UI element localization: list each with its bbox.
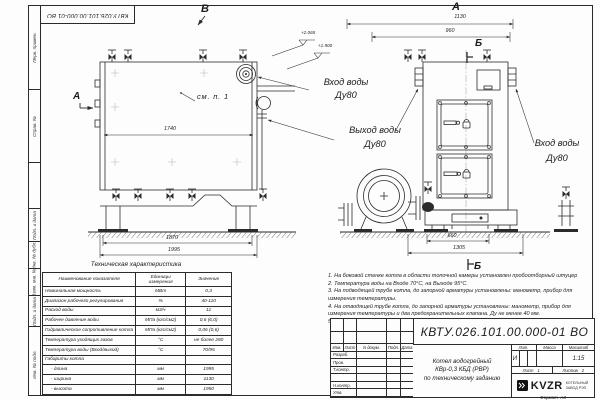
dim-1995: 1995 [168, 248, 180, 253]
role-razrab: Разраб. [331, 352, 357, 360]
lit-mass-scale-headers: Лит. Масса Масштаб [511, 344, 594, 351]
dim-960: 960 [446, 29, 455, 34]
scale-header: Масштаб [563, 344, 594, 351]
section-arrow-b [198, 16, 205, 25]
sheets-cell: Листов2 [553, 367, 595, 374]
elevation-lower: +1.900 [318, 44, 332, 49]
roles-grid: Разраб. Пров. Т.контр. Н.контр. Утв. [331, 352, 413, 398]
lit-value: И [511, 351, 520, 367]
spec-row: Температура уходящих газов°Сне более 280 [43, 335, 232, 345]
dim-1130: 1130 [454, 15, 466, 20]
spec-row: - ширинамм1130 [43, 375, 232, 385]
front-ground [340, 232, 550, 238]
view-marker-v: В [201, 4, 209, 15]
col-list: Лист [344, 344, 357, 352]
view-marker-a-front: А [452, 2, 460, 13]
side-inlet-flange [237, 65, 256, 84]
role-prov: Пров. [331, 359, 357, 367]
side-outlet-piping [256, 86, 295, 201]
dim-1305: 1305 [453, 246, 465, 251]
product-line-3: по техническому заданию [424, 375, 500, 383]
role-nkontr: Н.контр. [331, 382, 357, 390]
section-arrow-a [80, 103, 93, 108]
spec-row: Расход водым3/ч11 [43, 306, 232, 316]
sheet-cell: Лист1 [511, 367, 553, 374]
section-letter-a-side: А [73, 92, 80, 102]
side-view-drawing [80, 16, 418, 258]
company-name: КОТЕЛЬНЫЙ ЗАВОД РЭП [566, 381, 589, 389]
section-mark-b-top [467, 52, 473, 63]
col-dokum: N докум. [357, 344, 387, 352]
title-block: КВТУ.026.101.00.000-01 ВО Изм. Лист N до… [330, 318, 595, 398]
revision-header-row: Изм. Лист N докум. Подп. Дата [331, 344, 413, 352]
section-letter-b-bottom: Б [474, 262, 481, 272]
front-top-panel [477, 70, 500, 90]
product-name-cell: Котел водогрейный КВр-0,3 КБД (РВР) по т… [413, 344, 512, 397]
front-inlet-dn: Ду80 [546, 154, 567, 163]
outlet-dn: Ду80 [364, 140, 385, 149]
col-data: Дата [401, 344, 413, 352]
spec-col-param: Наименование показателя [43, 273, 136, 287]
side-top-valves [108, 50, 247, 62]
doc-number-cell: КВТУ.026.101.00.000-01 ВО [413, 319, 595, 345]
role-tkontr: Т.контр. [331, 367, 357, 375]
note-3: 3. На подводящей трубе котла, до запорно… [328, 288, 594, 303]
spec-row: - высотамм1950 [43, 384, 232, 394]
elevation-upper: +2.065 [301, 31, 315, 36]
dim-1870: 1870 [166, 236, 178, 241]
spec-row: Номинальная мощностьМВт0,3 [43, 287, 232, 297]
spec-row: Диапазон рабочего регулирования%40-110 [43, 296, 232, 306]
spec-row: Рабочее давление водыМПа (кгс/см2)0,6 (6… [43, 316, 232, 326]
center-marks [111, 69, 241, 166]
format-label: Формат А3 [540, 396, 566, 400]
side-base [98, 189, 258, 232]
col-izm: Изм. [331, 344, 344, 352]
spec-col-units: Единицыизмерения [136, 273, 186, 287]
fan [338, 169, 414, 232]
side-ground [88, 232, 296, 238]
upper-door [437, 100, 492, 150]
revision-grid [331, 319, 413, 344]
role-utv: Утв. [331, 389, 357, 397]
scale-value: 1:15 [563, 351, 594, 367]
note-1: 1. На боковой стенке котла в области топ… [328, 273, 594, 281]
company-logo-icon [517, 380, 528, 391]
title-block-right: Лит. Масса Масштаб И 1:15 Лист1 Листов2 [511, 344, 594, 397]
side-dimension-lines [100, 135, 257, 258]
product-line-1: Котел водогрейный [433, 358, 492, 366]
spec-row: Температура воды (Вход/выход)°С70/95 [43, 345, 232, 355]
see-note-leader [180, 92, 195, 101]
spec-table: Наименование показателя Единицыизмерения… [42, 272, 232, 395]
section-letter-b-top: Б [475, 39, 482, 49]
front-inlet-leader [516, 89, 534, 143]
note-4: 4. На отводящей трубе котла, до запорной… [328, 304, 594, 319]
mass-value [537, 351, 563, 367]
lit-mass-scale-values: И 1:15 [511, 351, 594, 367]
front-inlet-label: Вход воды [535, 139, 580, 148]
pump-assembly [408, 182, 434, 220]
lit-header: Лит. [511, 344, 537, 351]
spec-row: Гидравлическое сопротивление котлаМПа (к… [43, 326, 232, 336]
dim-1740: 1740 [164, 127, 176, 132]
sheet-row: Лист1 Листов2 [511, 367, 594, 374]
front-base [424, 210, 518, 232]
company-abbr: KVZR [531, 380, 563, 392]
side-inlet-dn: Ду80 [335, 91, 356, 100]
drawing-sheet: Перв. примен. Справ. № Подп. и дата Инв.… [0, 0, 600, 400]
spec-row: Габариты котла [43, 355, 232, 365]
front-top-valves [404, 50, 491, 62]
right-riser-valve [554, 187, 578, 232]
product-line-2: КВр-0,3 КБД (РВР) [435, 366, 489, 374]
outlet-label: Выход воды [349, 126, 401, 135]
lower-door [437, 154, 492, 198]
see-note-reference: см. п. 1 [197, 93, 229, 101]
role-empty [331, 374, 357, 382]
doc-number: КВТУ.026.101.00.000-01 ВО [421, 325, 589, 339]
dim-660: 660 [448, 234, 457, 239]
spec-col-value: Значение [186, 273, 232, 287]
side-inlet-label: Вход воды [324, 78, 369, 87]
col-podp: Подп. [387, 344, 401, 352]
spec-table-title: Техническая характеристика [91, 262, 181, 268]
spec-row: - длинамм1995 [43, 365, 232, 375]
spec-header-row: Наименование показателя Единицыизмерения… [43, 273, 232, 287]
mass-header: Масса [537, 344, 563, 351]
front-side-flanges [415, 68, 516, 86]
